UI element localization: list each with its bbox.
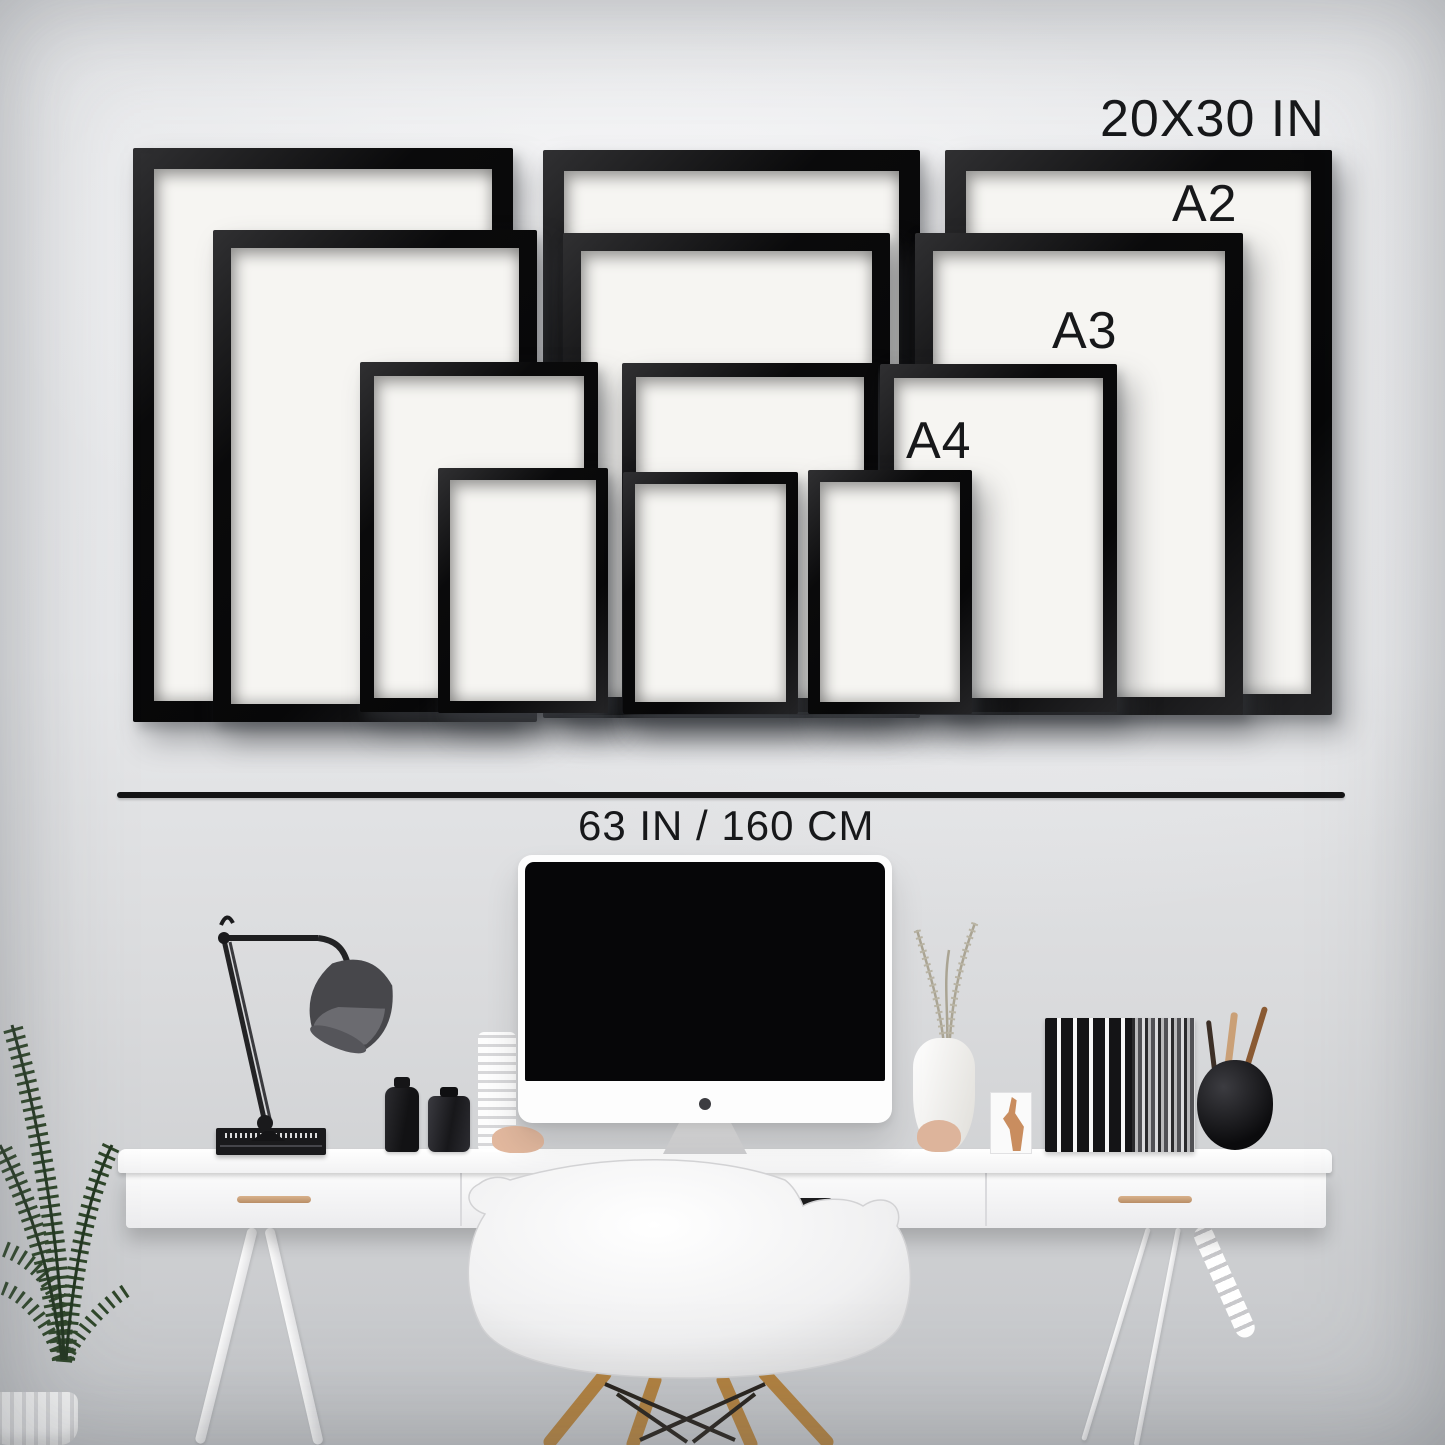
drawer-seam [985,1173,987,1226]
peach-stone [917,1120,961,1152]
wall-width-label: 63 IN / 160 CM [578,804,874,848]
eames-armchair-icon [455,1152,920,1445]
desk-lamp-icon [185,885,405,1160]
imac-stand [663,1118,747,1154]
apple-logo-icon [699,1098,711,1110]
dried-sprigs-icon [905,905,995,1055]
size-label-a3: A3 [1052,304,1118,359]
desk-leg [194,1227,257,1445]
frame-size-guide-image: 20X30 IN A2 A3 A4 63 IN / 160 CM [0,0,1445,1445]
size-label-a4: A4 [906,414,972,469]
standing-books [1045,1018,1195,1152]
imac-computer [518,855,892,1123]
imac-screen [525,862,885,1081]
pen [1206,1020,1217,1070]
desk-leg [264,1227,324,1445]
palm-plant-icon [0,930,144,1390]
plant-pot [0,1392,78,1445]
drawer-handle-left [237,1196,311,1203]
ink-bottle [428,1096,470,1152]
size-label-20x30: 20X30 IN [1100,92,1325,147]
ink-bottle [385,1087,419,1152]
wall-width-measure-line [117,792,1345,798]
size-label-a2: A2 [1172,177,1238,232]
desk-leg-textured [1191,1223,1258,1341]
drawer-handle-right [1118,1196,1192,1203]
tan-stone [492,1126,544,1153]
pen-pot [1197,1060,1273,1150]
